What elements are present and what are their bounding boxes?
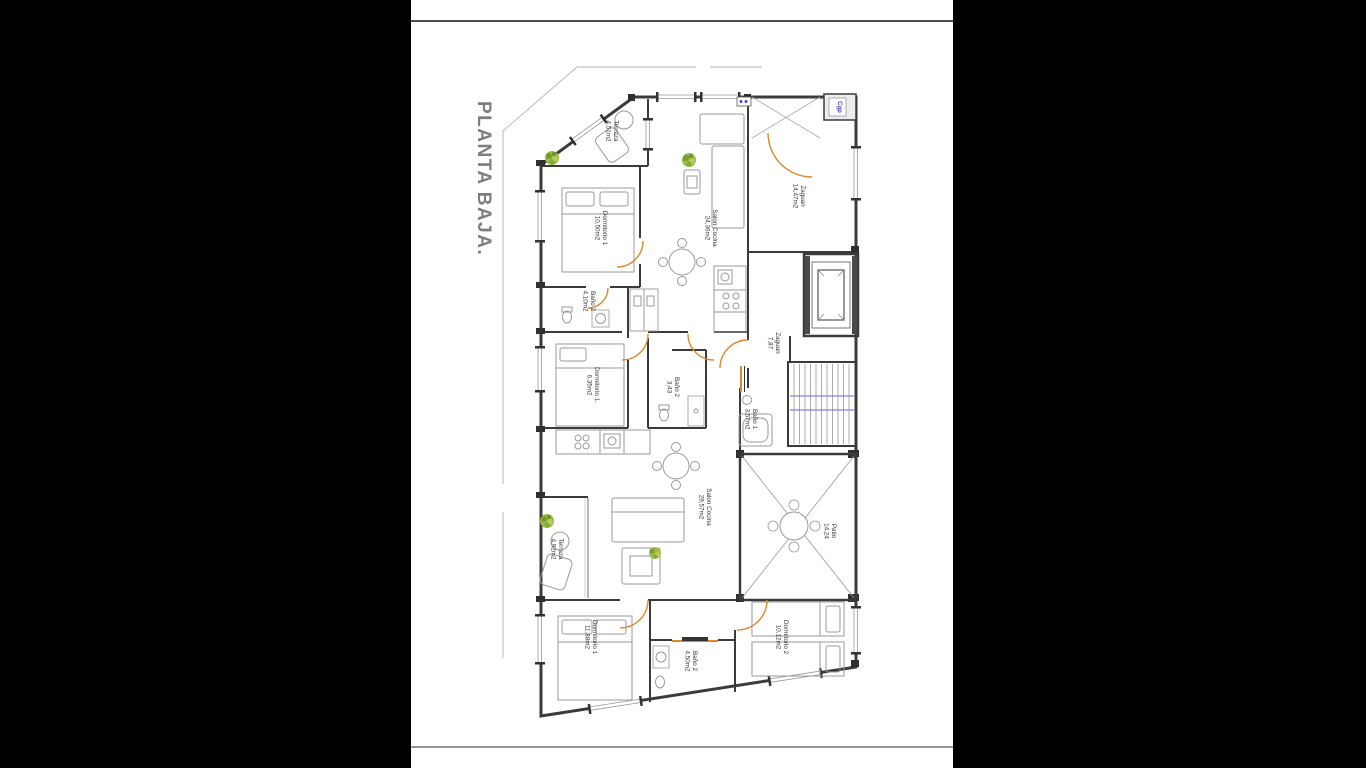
dining-table-bottom [653, 443, 700, 490]
room-label: Dormitorio 1.6,35m2 [586, 367, 601, 403]
utility-box-label: Cgp [836, 101, 842, 113]
room-label: Baño 23,43 [666, 377, 681, 397]
room-label: Baño 13,57m2 [744, 408, 759, 430]
plant-icon [545, 151, 559, 165]
windows [535, 92, 861, 714]
room-label: Dormitorio 111,88m2 [584, 620, 599, 655]
patio [740, 454, 856, 600]
wardrobe [630, 289, 658, 331]
room-label: Dormitorio 110,50m2 [594, 211, 609, 246]
room-label: Terraza4,51m2 [605, 120, 620, 142]
dining-table-top [659, 239, 706, 286]
bathroom-mid [659, 396, 704, 426]
document-page: PLANTA BAJA. [411, 0, 953, 768]
kitchen-top [714, 266, 746, 332]
floor-plan-drawing: Cgp [411, 0, 953, 768]
entrance-porch-hatch [752, 97, 820, 138]
room-label: Baño 24,10m2 [582, 290, 597, 312]
plant-icon [540, 514, 554, 528]
plant-icon [649, 547, 661, 559]
screenshot-canvas: PLANTA BAJA. [0, 0, 1366, 768]
room-label: Patio14,24 [823, 523, 838, 539]
elevator [804, 254, 858, 336]
room-label: Dormitorio 210,12m2 [775, 620, 790, 655]
room-label: Terraza4,92m2 [550, 538, 565, 560]
electrical-box-icon [737, 97, 751, 106]
room-label: Zaguan7,87 [767, 332, 782, 354]
sofa-top [700, 114, 744, 228]
kitchen-bottom [556, 430, 650, 454]
building-outline [541, 97, 856, 716]
utility-box: Cgp [824, 94, 856, 120]
sofa-bottom [612, 498, 684, 542]
room-label: Salon Cocina29,57m2 [698, 488, 713, 526]
room-label: Zaguan14,47m2 [792, 184, 807, 209]
room-label: Salon Cocina24,36m2 [704, 209, 719, 247]
beds [556, 188, 844, 700]
bathroom-bottom [653, 646, 669, 688]
staircase [788, 362, 856, 446]
room-label: Baño 24,50m2 [684, 650, 699, 672]
side-table-top [684, 170, 700, 194]
terrace-glazing [585, 498, 588, 598]
plant-icon [682, 153, 696, 167]
